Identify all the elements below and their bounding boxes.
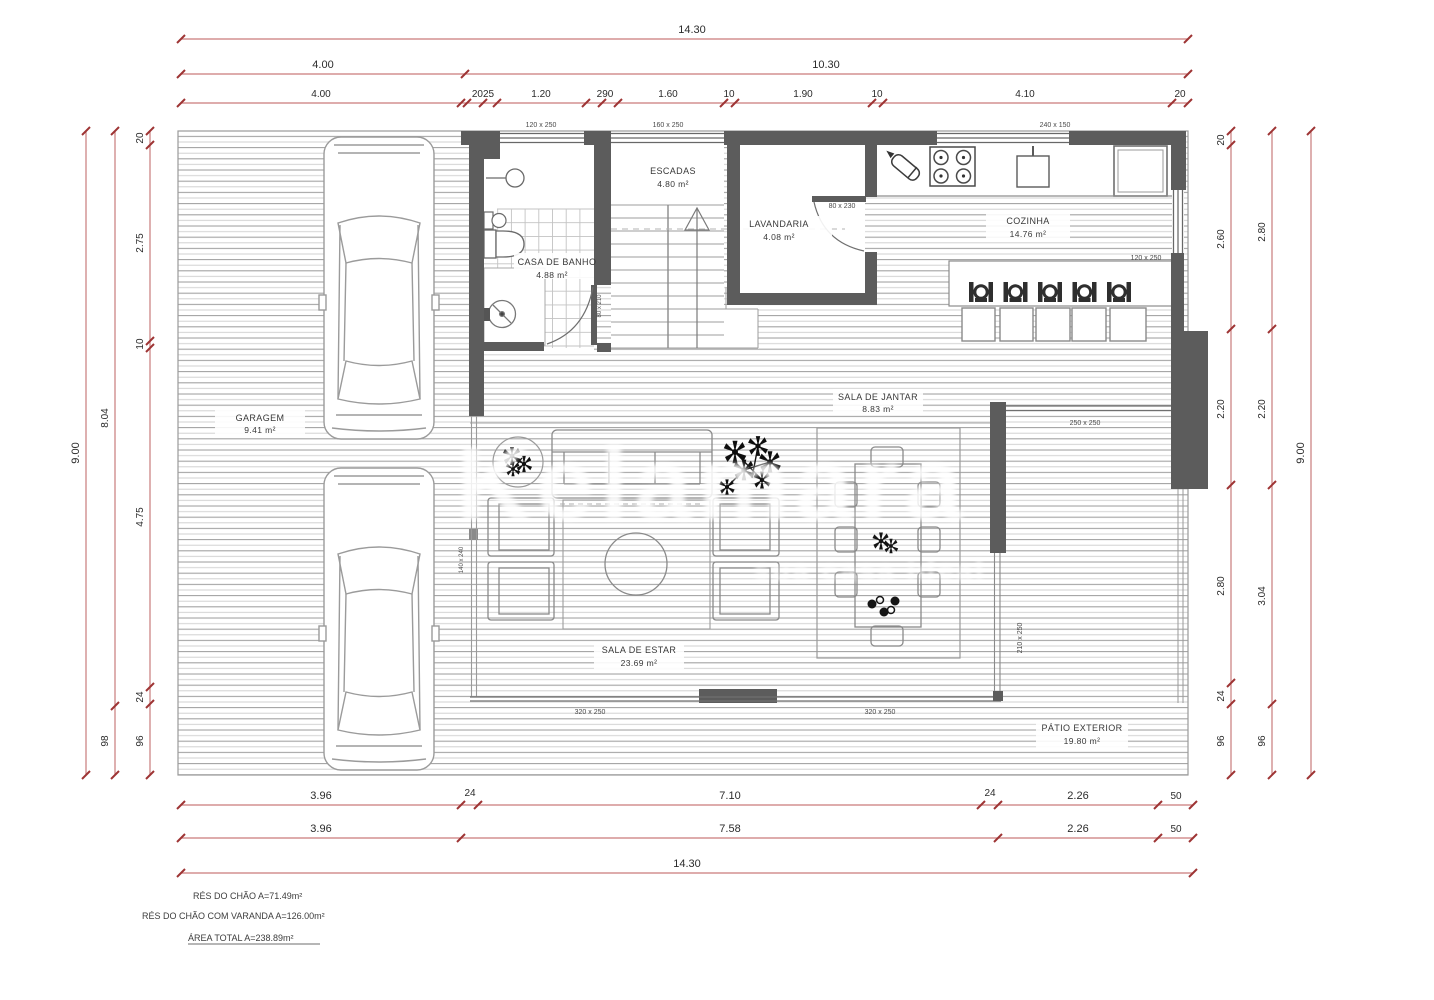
svg-text:9.00: 9.00 [70,442,82,463]
svg-text:2.26: 2.26 [1067,790,1088,802]
svg-text:14.30: 14.30 [678,24,706,36]
svg-text:120 x 250: 120 x 250 [1131,255,1162,262]
svg-text:PÁTIO EXTERIOR: PÁTIO EXTERIOR [1041,723,1122,733]
svg-text:3.04: 3.04 [1257,586,1268,606]
svg-text:8.83 m²: 8.83 m² [862,404,894,414]
svg-text:160 x 250: 160 x 250 [653,122,684,129]
svg-text:ÁREA TOTAL A=238.89m²: ÁREA TOTAL A=238.89m² [188,933,293,943]
svg-text:120 x 250: 120 x 250 [526,122,557,129]
svg-text:210 x 250: 210 x 250 [1017,623,1024,654]
svg-text:50: 50 [1170,791,1182,802]
svg-text:4.88 m²: 4.88 m² [536,270,568,280]
svg-text:50: 50 [1170,824,1182,835]
svg-text:4.75: 4.75 [135,507,146,527]
svg-text:20: 20 [1174,89,1186,100]
svg-text:3.96: 3.96 [310,790,331,802]
svg-text:2.80: 2.80 [1216,576,1227,596]
svg-text:7.10: 7.10 [719,790,740,802]
svg-text:10: 10 [723,89,735,100]
svg-text:1.60: 1.60 [658,89,678,100]
svg-text:4.00: 4.00 [311,89,331,100]
svg-text:320 x 250: 320 x 250 [865,709,896,716]
svg-text:80 x 230: 80 x 230 [829,203,856,210]
svg-text:80 x 210: 80 x 210 [597,294,603,318]
svg-text:Kelamara: Kelamara [456,426,968,541]
svg-text:SALA DE ESTAR: SALA DE ESTAR [602,645,677,655]
svg-text:4.00: 4.00 [312,59,333,71]
svg-text:10: 10 [135,338,146,350]
svg-text:320 x 250: 320 x 250 [575,709,606,716]
svg-text:2.20: 2.20 [1257,399,1268,419]
svg-text:24: 24 [464,788,476,799]
svg-text:96: 96 [1257,735,1268,747]
svg-text:2025: 2025 [472,89,495,100]
svg-text:CASA DE BANHO: CASA DE BANHO [518,257,597,267]
svg-text:2.60: 2.60 [1216,229,1227,249]
svg-text:2.20: 2.20 [1216,399,1227,419]
svg-text:20: 20 [135,132,146,144]
svg-text:140 x 240: 140 x 240 [459,546,465,573]
svg-text:20: 20 [1216,134,1227,146]
svg-text:4.80 m²: 4.80 m² [657,179,689,189]
svg-text:COZINHA: COZINHA [1006,216,1049,226]
svg-text:240 x 150: 240 x 150 [1040,122,1071,129]
svg-text:3.96: 3.96 [310,823,331,835]
svg-text:sua casa ideal: sua casa ideal [754,555,986,586]
svg-text:98: 98 [100,735,111,747]
svg-text:9.41 m²: 9.41 m² [244,425,276,435]
svg-text:7.58: 7.58 [719,823,740,835]
svg-text:1.90: 1.90 [793,89,813,100]
svg-text:GARAGEM: GARAGEM [236,413,285,423]
svg-text:250 x 250: 250 x 250 [1070,420,1101,427]
svg-text:24: 24 [135,691,146,703]
svg-text:4.08 m²: 4.08 m² [763,232,795,242]
svg-text:14.30: 14.30 [673,858,701,870]
svg-text:2.26: 2.26 [1067,823,1088,835]
svg-text:24: 24 [984,788,996,799]
svg-text:RÉS DO CHÃO COM VARANDA A=126.: RÉS DO CHÃO COM VARANDA A=126.00m² [142,911,325,921]
svg-text:290: 290 [597,89,614,100]
svg-text:1.20: 1.20 [531,89,551,100]
svg-text:96: 96 [135,735,146,747]
svg-text:2.75: 2.75 [135,233,146,253]
svg-text:SALA DE JANTAR: SALA DE JANTAR [838,392,918,402]
svg-text:8.04: 8.04 [100,408,111,428]
svg-text:10.30: 10.30 [812,59,840,71]
svg-text:24: 24 [1216,690,1227,702]
svg-text:9.00: 9.00 [1295,442,1307,463]
svg-text:14.76 m²: 14.76 m² [1010,229,1047,239]
svg-text:ESCADAS: ESCADAS [650,166,696,176]
svg-text:10: 10 [871,89,883,100]
svg-text:RÉS DO CHÃO A=71.49m²: RÉS DO CHÃO A=71.49m² [193,891,302,901]
svg-text:4.10: 4.10 [1015,89,1035,100]
svg-text:2.80: 2.80 [1257,222,1268,242]
svg-text:96: 96 [1216,735,1227,747]
svg-text:19.80 m²: 19.80 m² [1064,736,1101,746]
svg-text:23.69 m²: 23.69 m² [621,658,658,668]
svg-text:LAVANDARIA: LAVANDARIA [749,219,809,229]
